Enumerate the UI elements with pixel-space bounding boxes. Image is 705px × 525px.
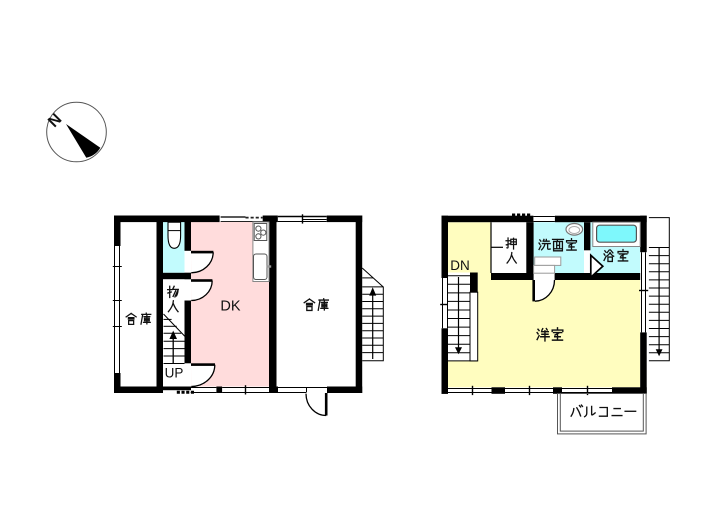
svg-text:DK: DK xyxy=(220,298,240,314)
svg-text:UP: UP xyxy=(165,366,184,381)
svg-text:DN: DN xyxy=(450,258,470,273)
